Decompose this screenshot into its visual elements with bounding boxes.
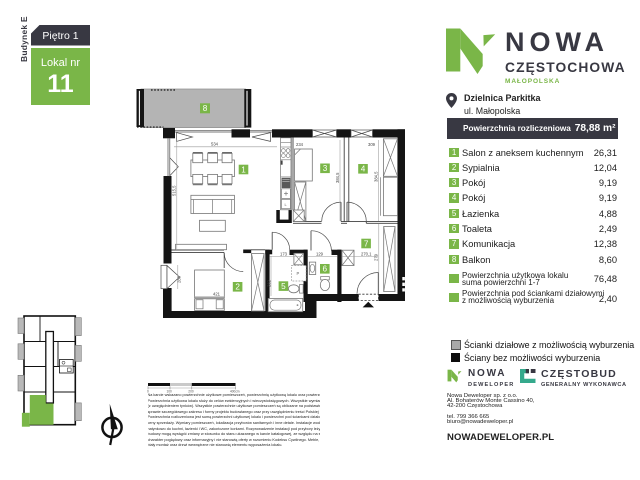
svg-text:173: 173 (280, 251, 288, 256)
svg-text:421: 421 (213, 292, 221, 297)
svg-text:534: 534 (211, 141, 219, 146)
svg-text:6: 6 (323, 265, 328, 274)
svg-text:200: 200 (188, 389, 194, 393)
svg-text:100: 100 (167, 389, 173, 393)
svg-text:234: 234 (296, 142, 304, 147)
svg-text:286: 286 (177, 275, 182, 283)
svg-text:129: 129 (316, 251, 324, 256)
svg-text:2: 2 (235, 283, 240, 292)
svg-text:8: 8 (203, 104, 208, 113)
svg-text:384,5: 384,5 (335, 172, 340, 183)
svg-text:400cm: 400cm (230, 389, 240, 393)
svg-text:3: 3 (323, 164, 328, 173)
svg-text:282: 282 (266, 279, 271, 287)
svg-text:L: L (285, 202, 288, 207)
svg-text:515,5: 515,5 (172, 185, 177, 196)
svg-text:4: 4 (361, 165, 366, 174)
svg-text:0: 0 (147, 389, 149, 393)
svg-text:1: 1 (241, 165, 246, 174)
svg-text:P: P (297, 271, 300, 276)
svg-text:270,1: 270,1 (361, 251, 372, 256)
svg-text:309: 309 (368, 142, 376, 147)
svg-text:5: 5 (281, 282, 286, 291)
svg-text:384,5: 384,5 (374, 171, 379, 182)
svg-text:279: 279 (374, 253, 379, 261)
svg-text:7: 7 (364, 239, 369, 248)
